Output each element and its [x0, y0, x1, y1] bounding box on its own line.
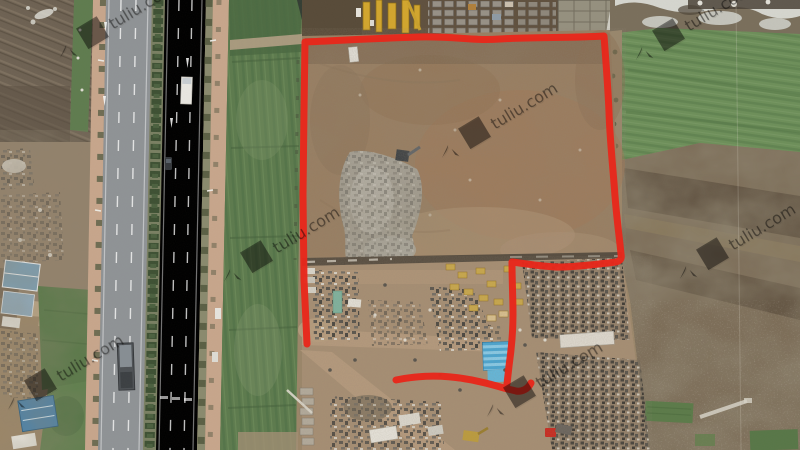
aerial-photo-canvas: tuliu.com: [0, 0, 800, 450]
aerial-photo: tuliu.com: [0, 0, 800, 450]
